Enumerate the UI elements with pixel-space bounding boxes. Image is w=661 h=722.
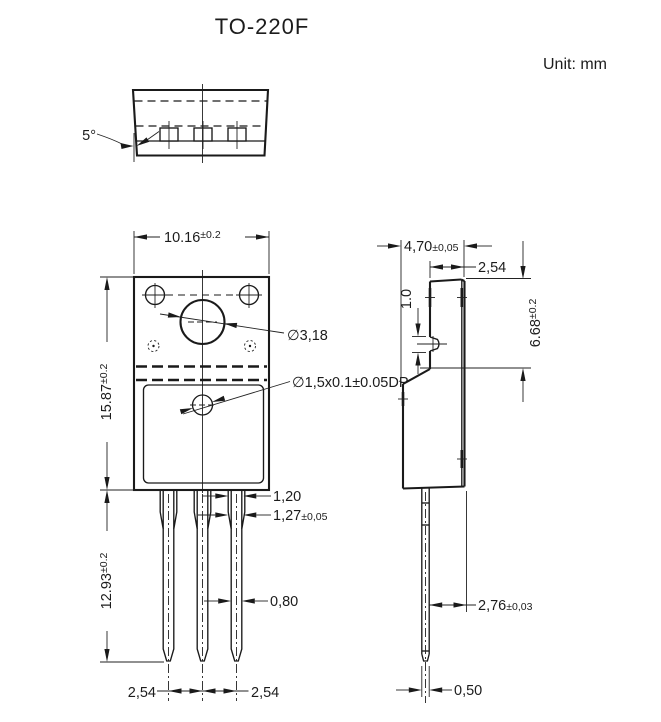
- dim-lead-width: 0,80: [204, 594, 298, 610]
- svg-text:2,54: 2,54: [128, 685, 156, 701]
- svg-text:6.68±0.2: 6.68±0.2: [527, 299, 544, 348]
- side-outline: [403, 280, 465, 489]
- dim-draft-angle: 5°: [82, 128, 159, 149]
- callout-mounting-hole: ∅3,18: [160, 312, 328, 344]
- svg-text:15.87±0.2: 15.87±0.2: [98, 364, 115, 421]
- dim-tab-depth: 2,54: [430, 260, 506, 278]
- drawing-page: TO-220F Unit: mm 5°: [0, 0, 661, 722]
- front-inner-panel: [144, 385, 264, 483]
- top-view-outline: [133, 90, 268, 156]
- svg-text:1,20: 1,20: [273, 489, 301, 505]
- dim-lead-length: 12.93±0.2: [98, 490, 164, 662]
- svg-text:1.0: 1.0: [399, 289, 415, 309]
- side-view: 4,70±0,05 2,54 1.0 6.6: [377, 239, 544, 703]
- front-view: 10.16±0.2 15.87±0.2 12.93±0.2 ∅3,18: [98, 229, 409, 701]
- side-lead: [422, 487, 429, 703]
- dim-boss: 1.0: [399, 289, 426, 374]
- svg-text:2,54: 2,54: [251, 685, 279, 701]
- crosshair-marks: [142, 283, 262, 308]
- svg-text:12.93±0.2: 12.93±0.2: [98, 553, 115, 610]
- svg-text:10.16±0.2: 10.16±0.2: [164, 229, 221, 246]
- svg-text:2,54: 2,54: [478, 260, 506, 276]
- svg-text:4,70±0,05: 4,70±0,05: [404, 239, 459, 255]
- top-view: 5°: [82, 84, 268, 163]
- dim-body-height: 15.87±0.2: [98, 277, 160, 490]
- dim-width: 10.16±0.2: [134, 229, 269, 274]
- front-body-outline: [134, 277, 269, 490]
- dim-lead-top-width: 1,20: [202, 489, 301, 505]
- dim-lead-to-back: 2,76±0,03: [429, 491, 532, 614]
- draft-angle-label: 5°: [82, 128, 96, 144]
- svg-text:1,27±0,05: 1,27±0,05: [273, 508, 328, 524]
- svg-text:∅1,5x0.1±0.05DP: ∅1,5x0.1±0.05DP: [292, 375, 409, 391]
- technical-drawing: TO-220F Unit: mm 5°: [0, 0, 661, 722]
- svg-text:2,76±0,03: 2,76±0,03: [478, 598, 533, 614]
- dim-lead-shoulder: 1,27±0,05: [198, 508, 328, 524]
- svg-text:0,50: 0,50: [454, 683, 482, 699]
- svg-text:∅3,18: ∅3,18: [287, 328, 328, 344]
- dim-depth: 4,70±0,05: [377, 239, 492, 378]
- svg-text:0,80: 0,80: [270, 594, 298, 610]
- page-title: TO-220F: [215, 14, 310, 39]
- ejector-marks-front: [148, 341, 256, 352]
- unit-label: Unit: mm: [543, 56, 607, 73]
- dim-lead-thickness: 0,50: [396, 666, 482, 699]
- dim-lead-pitch: 2,54 2,54: [128, 685, 279, 701]
- callout-dimple: ∅1,5x0.1±0.05DP: [180, 375, 409, 414]
